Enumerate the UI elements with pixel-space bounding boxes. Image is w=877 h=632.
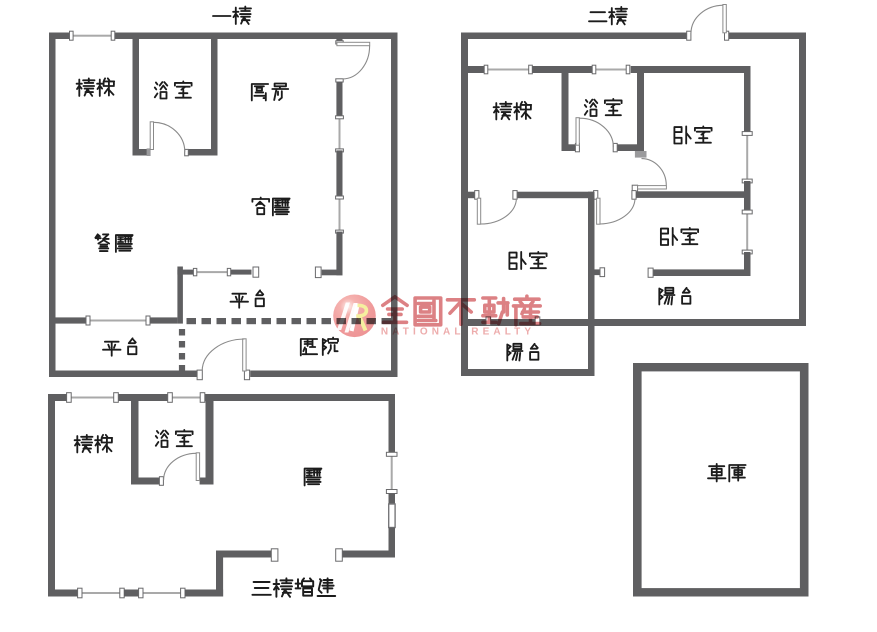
svg-text:NATIONAL REALTY: NATIONAL REALTY [381,327,535,338]
